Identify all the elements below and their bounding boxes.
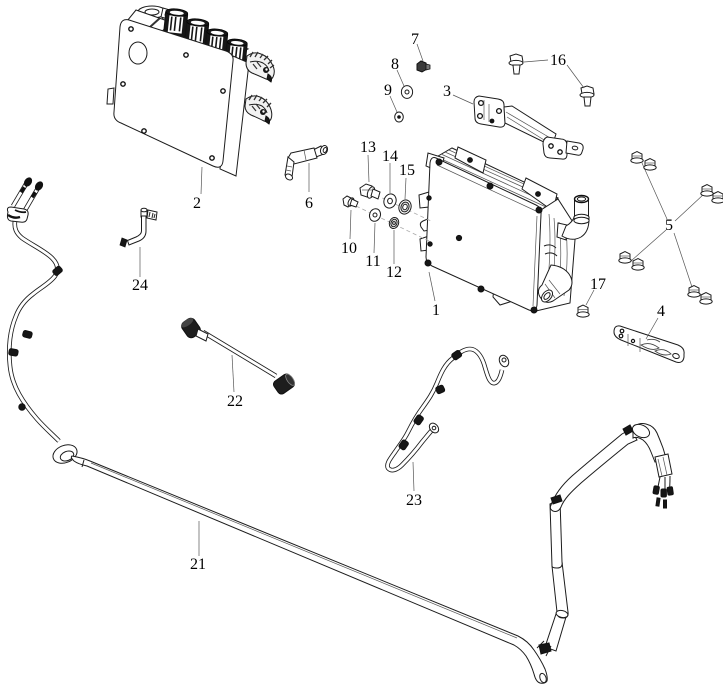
svg-text:22: 22: [227, 393, 243, 410]
svg-text:10: 10: [341, 240, 357, 257]
svg-text:2: 2: [193, 195, 201, 212]
svg-text:7: 7: [411, 31, 419, 48]
svg-text:23: 23: [406, 492, 422, 509]
svg-text:24: 24: [132, 277, 148, 294]
svg-text:21: 21: [190, 556, 206, 573]
svg-text:17: 17: [590, 276, 606, 293]
svg-text:6: 6: [305, 195, 313, 212]
svg-text:8: 8: [391, 56, 399, 73]
svg-text:4: 4: [657, 303, 665, 320]
svg-text:11: 11: [365, 253, 380, 270]
svg-text:15: 15: [399, 162, 415, 179]
svg-text:3: 3: [443, 83, 451, 100]
svg-text:14: 14: [382, 148, 398, 165]
svg-text:9: 9: [384, 82, 392, 99]
svg-text:1: 1: [432, 302, 440, 319]
svg-text:5: 5: [665, 217, 673, 234]
svg-text:16: 16: [550, 52, 566, 69]
svg-text:12: 12: [386, 264, 402, 281]
svg-text:13: 13: [360, 139, 376, 156]
